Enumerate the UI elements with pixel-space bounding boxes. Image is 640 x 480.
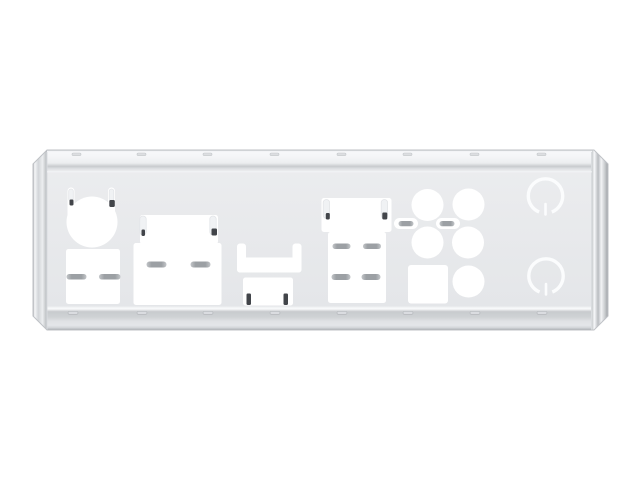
bent-tab-tick: [284, 294, 289, 306]
bent-tab-tick: [247, 294, 252, 306]
bent-tab-tick: [109, 200, 115, 207]
audio-jack-holes-shape: [452, 227, 484, 259]
left-flange: [33, 150, 47, 330]
lan-usb-combo-cutout-left-shape: [134, 243, 222, 305]
top-flange-notch: [470, 153, 479, 156]
spring-finger-tab: [332, 274, 351, 280]
spring-finger-tab: [440, 221, 455, 226]
top-flange-notch: [72, 153, 81, 156]
bottom-flange-notch: [337, 312, 347, 315]
audio-jack-holes-shape: [453, 189, 485, 221]
bottom-flange-notch: [537, 312, 547, 315]
audio-jack-holes-shape: [412, 227, 444, 259]
audio-jack-holes-shape: [453, 266, 485, 298]
top-flange-notch: [270, 153, 279, 156]
bent-tab-tick: [142, 230, 146, 237]
spring-finger-tab: [399, 221, 414, 226]
audio-jack-holes-shape: [412, 189, 444, 221]
product-photo-canvas: [0, 0, 640, 480]
bent-tab-tick: [212, 229, 218, 236]
bottom-flange-notch: [137, 312, 147, 315]
spring-finger-tab: [99, 274, 121, 280]
spring-finger-tab: [333, 244, 351, 250]
top-flange: [33, 150, 608, 171]
spring-finger-tab: [67, 274, 87, 280]
bottom-flange: [33, 307, 608, 331]
optical-spdif-cutout-shape: [408, 265, 448, 304]
lan-usb-combo-cutout-left: [134, 215, 222, 305]
top-flange-notch: [137, 153, 146, 156]
bottom-flange-notch: [403, 312, 413, 315]
spring-finger-tab: [362, 274, 381, 280]
spring-finger-tab: [191, 262, 211, 268]
spring-finger-tab: [363, 244, 381, 250]
spring-tab-faint: [109, 189, 114, 201]
spring-finger-tab: [147, 262, 167, 268]
lan-usb-combo-cutout-right-shape: [328, 232, 386, 303]
top-flange-notch: [203, 153, 212, 156]
bottom-flange-notch: [270, 312, 280, 315]
bent-tab-tick: [382, 213, 387, 220]
lan-usb-combo-cutout-left-shape: [140, 215, 218, 244]
io-shield-product-photo: [0, 0, 640, 480]
optical-spdif-cutout: [408, 265, 448, 304]
top-flange-notch: [337, 153, 346, 156]
bottom-flange-notch: [470, 312, 480, 315]
bent-tab-tick: [70, 200, 74, 206]
top-flange-notch: [403, 153, 412, 156]
bottom-flange-notch: [68, 312, 78, 315]
spring-tab-faint: [69, 189, 74, 201]
right-flange: [592, 150, 608, 330]
bottom-flange-notch: [203, 312, 213, 315]
bent-tab-tick: [326, 213, 330, 220]
top-flange-notch: [537, 153, 546, 156]
video-port-clip-cutout-shape: [237, 258, 302, 273]
